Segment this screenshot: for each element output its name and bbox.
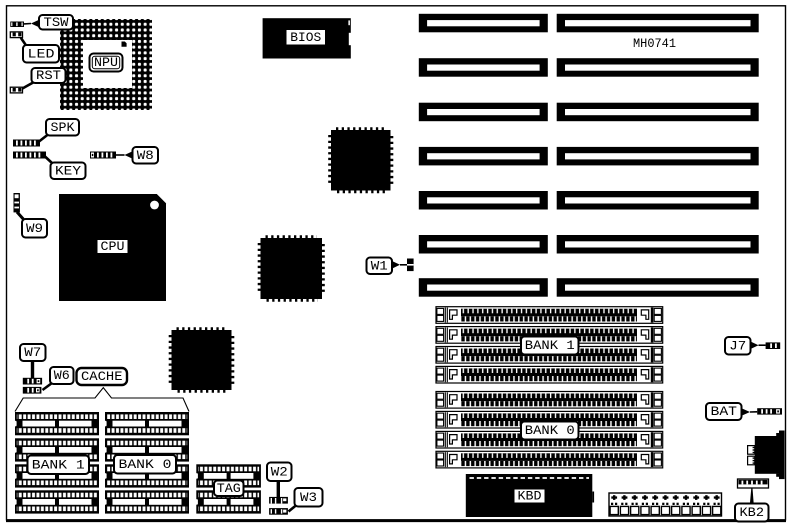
svg-text:BIOS: BIOS	[290, 31, 321, 45]
svg-text:J7: J7	[729, 338, 746, 353]
svg-text:SPK: SPK	[51, 120, 75, 135]
svg-text:W8: W8	[137, 148, 154, 163]
svg-text:BANK 1: BANK 1	[525, 338, 575, 353]
svg-text:W2: W2	[271, 464, 288, 479]
svg-text:KB2: KB2	[740, 505, 765, 520]
svg-text:W9: W9	[26, 221, 43, 236]
svg-text:NPU: NPU	[94, 56, 118, 70]
svg-text:W6: W6	[54, 368, 70, 383]
svg-text:W1: W1	[371, 258, 388, 273]
svg-text:RST: RST	[36, 68, 61, 83]
svg-text:BAT: BAT	[711, 404, 738, 419]
svg-text:LED: LED	[28, 46, 55, 61]
svg-text:MH0741: MH0741	[633, 37, 676, 51]
svg-text:CPU: CPU	[101, 240, 125, 254]
svg-text:BANK 0: BANK 0	[119, 457, 172, 472]
svg-text:BANK 1: BANK 1	[32, 457, 85, 472]
svg-text:KBD: KBD	[518, 490, 542, 504]
svg-text:TSW: TSW	[44, 15, 69, 30]
svg-text:CACHE: CACHE	[81, 369, 123, 384]
svg-text:KEY: KEY	[55, 163, 81, 178]
svg-text:TAG: TAG	[217, 481, 241, 496]
svg-text:W3: W3	[300, 490, 317, 505]
svg-text:BANK 0: BANK 0	[525, 423, 575, 438]
svg-text:W7: W7	[24, 345, 41, 360]
